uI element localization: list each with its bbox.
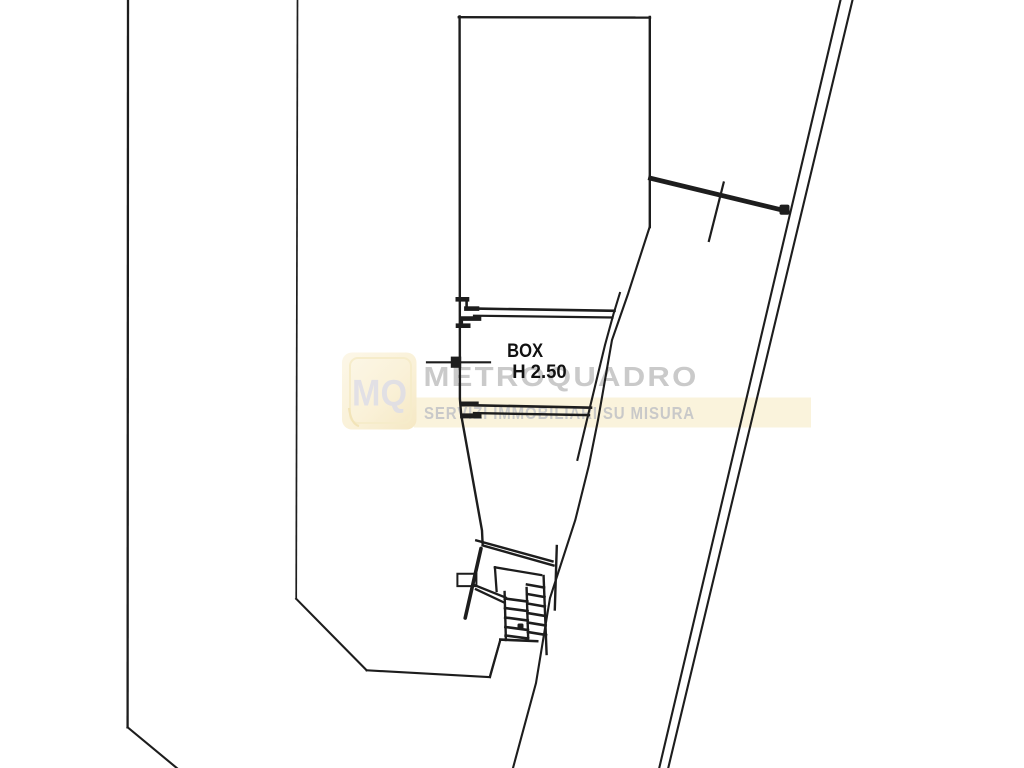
svg-text:H 2.50: H 2.50 (512, 361, 567, 383)
svg-text:MQ: MQ (352, 373, 407, 414)
svg-text:BOX: BOX (507, 340, 543, 362)
